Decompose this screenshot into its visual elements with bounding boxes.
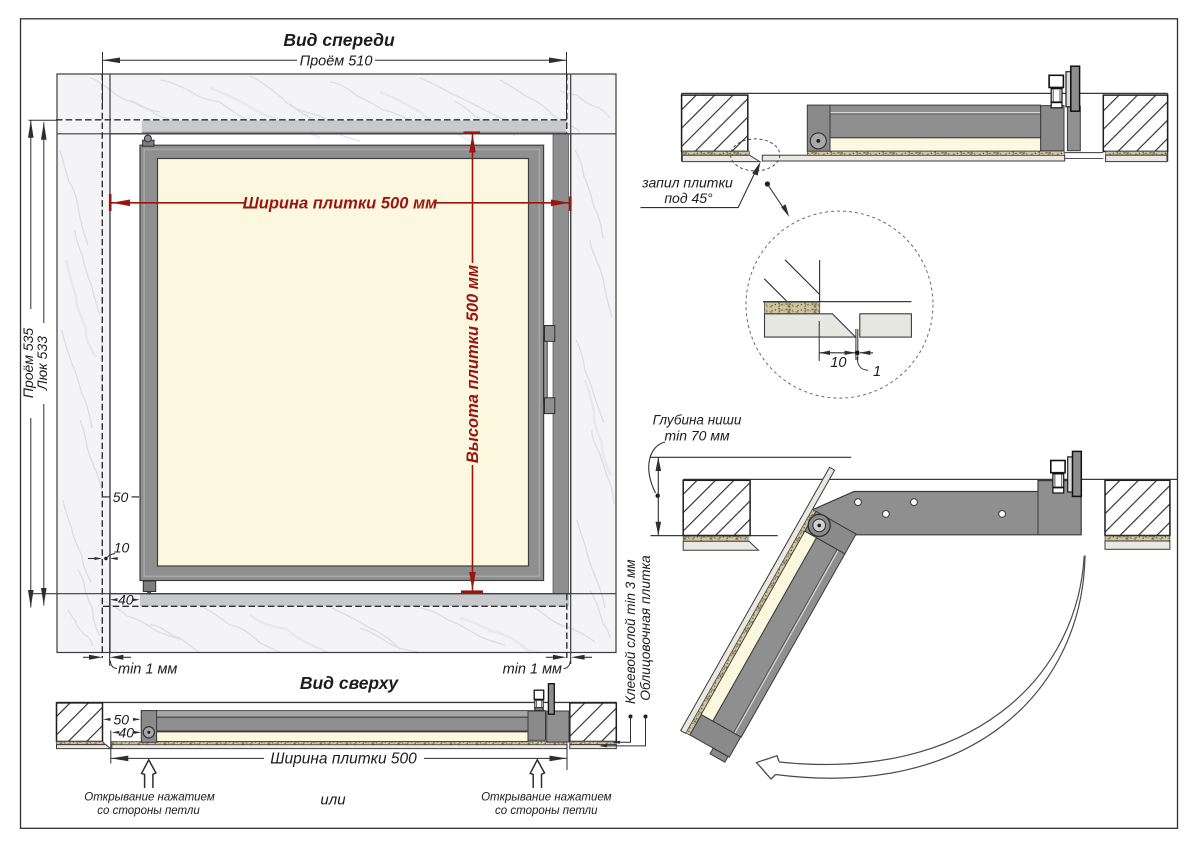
svg-text:со стороны петли: со стороны петли <box>495 805 598 817</box>
svg-text:Ширина плитки 500 мм: Ширина плитки 500 мм <box>243 195 438 213</box>
svg-text:Люк 533: Люк 533 <box>34 336 50 391</box>
svg-text:min 1 мм: min 1 мм <box>503 662 562 678</box>
svg-text:min 70 мм: min 70 мм <box>664 428 730 444</box>
svg-text:10: 10 <box>114 540 130 556</box>
svg-text:min 1 мм: min 1 мм <box>118 662 177 678</box>
svg-text:Открывание нажатием: Открывание нажатием <box>481 792 612 804</box>
svg-text:Облицовочная плитка: Облицовочная плитка <box>638 555 653 701</box>
svg-text:под 45°: под 45° <box>664 190 713 206</box>
svg-text:Клеевой слой min 3 мм: Клеевой слой min 3 мм <box>623 559 638 704</box>
svg-text:Вид спереди: Вид спереди <box>283 30 395 50</box>
svg-text:50: 50 <box>113 489 129 505</box>
svg-text:со стороны петли: со стороны петли <box>97 805 200 817</box>
svg-text:Открывание нажатием: Открывание нажатием <box>84 792 215 804</box>
svg-text:40: 40 <box>118 592 134 608</box>
svg-text:Проём 510: Проём 510 <box>300 54 373 70</box>
svg-text:1: 1 <box>873 364 881 380</box>
svg-text:Высота плитки 500 мм: Высота плитки 500 мм <box>464 265 482 463</box>
svg-text:запил плитки: запил плитки <box>641 175 733 191</box>
svg-text:10: 10 <box>830 355 846 371</box>
svg-text:Вид сверху: Вид сверху <box>300 673 400 693</box>
svg-text:Глубина ниши: Глубина ниши <box>653 413 742 428</box>
svg-text:40: 40 <box>119 724 135 740</box>
svg-text:или: или <box>320 792 346 809</box>
svg-text:Ширина плитки 500: Ширина плитки 500 <box>270 751 417 768</box>
